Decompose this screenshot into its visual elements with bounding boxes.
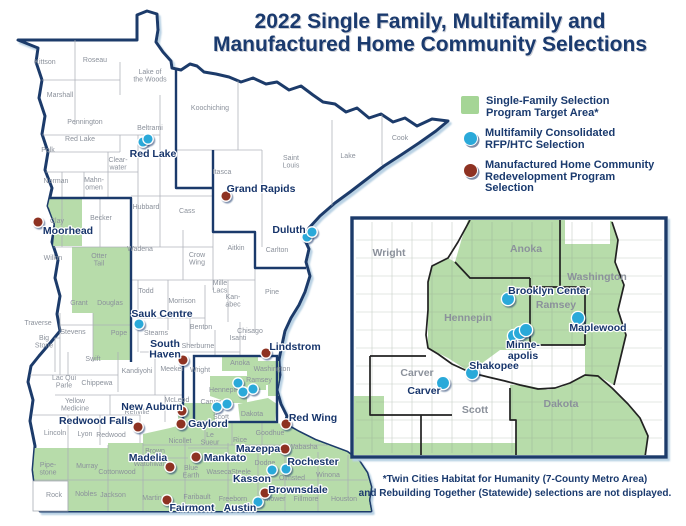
county-label: Becker bbox=[90, 215, 112, 222]
marker-minneapolis-3 bbox=[519, 323, 532, 336]
target-area-swatch-icon bbox=[461, 96, 479, 114]
county-label: Fillmore bbox=[294, 496, 319, 503]
city-label: Lindstrom bbox=[269, 341, 320, 353]
county-label: Pipe-stone bbox=[39, 462, 56, 477]
county-label: Dakota bbox=[241, 411, 263, 418]
county-label: Chippewa bbox=[81, 380, 112, 387]
county-label: Waseca bbox=[206, 469, 231, 476]
county-label: MilleLacs bbox=[213, 280, 228, 295]
city-label: Madelia bbox=[129, 452, 168, 464]
footnote-line1: *Twin Cities Habitat for Humanity (7-Cou… bbox=[352, 473, 678, 487]
county-label: Douglas bbox=[97, 300, 123, 307]
county-label: SaintLouis bbox=[283, 155, 300, 170]
marker-moorhead bbox=[33, 217, 43, 227]
county-label: Chisago bbox=[237, 328, 263, 335]
inset-county-label: Dakota bbox=[543, 398, 578, 410]
city-label: SouthHaven bbox=[149, 338, 181, 361]
county-label: Washington bbox=[254, 366, 291, 373]
county-label: Beltrami bbox=[137, 125, 163, 132]
city-label: Red Wing bbox=[289, 412, 337, 424]
legend-label: Single-Family Selection bbox=[486, 96, 609, 108]
legend-label: RFP/HTC Selection bbox=[485, 140, 615, 152]
county-label: Benton bbox=[190, 324, 212, 331]
marker-mankato bbox=[191, 452, 201, 462]
county-label: Wabasha bbox=[288, 444, 317, 451]
marker-metro-3 bbox=[248, 384, 258, 394]
county-label: Hubbard bbox=[133, 204, 160, 211]
county-label: Red Lake bbox=[65, 136, 95, 143]
marker-duluth-2 bbox=[307, 227, 317, 237]
inset-county-label: Hennepin bbox=[444, 312, 492, 324]
county-label: Aitkin bbox=[227, 245, 244, 252]
legend-label: Program Target Area* bbox=[486, 108, 609, 120]
county-label: Goodhue bbox=[256, 430, 285, 437]
legend-item-manufactured: Manufactured Home Community Redevelopmen… bbox=[455, 160, 683, 195]
legend-label: Manufactured Home Community bbox=[485, 160, 654, 172]
map-canvas: KittsonRoseauLake ofthe WoodsMarshallKoo… bbox=[0, 0, 686, 526]
inset-city-label: Carver bbox=[407, 385, 440, 397]
legend: Single-Family Selection Program Target A… bbox=[455, 96, 683, 204]
county-label: Norman bbox=[44, 178, 69, 185]
county-label: Itasca bbox=[213, 169, 232, 176]
county-label: Martin bbox=[142, 495, 162, 502]
county-label: Stearns bbox=[144, 330, 169, 337]
county-label: Lake bbox=[340, 153, 355, 160]
county-label: Wadena bbox=[127, 246, 153, 253]
county-label: Traverse bbox=[24, 320, 51, 327]
marker-metro-2 bbox=[238, 387, 248, 397]
marker-gaylord bbox=[176, 419, 186, 429]
county-label: Kan-abec bbox=[225, 294, 241, 309]
legend-label: Multifamily Consolidated bbox=[485, 128, 615, 140]
inset-county-label: Ramsey bbox=[536, 299, 576, 311]
county-label: BlueEarth bbox=[183, 465, 200, 480]
map-title-line1: 2022 Single Family, Multifamily and bbox=[178, 10, 682, 33]
county-label: Marshall bbox=[47, 92, 74, 99]
county-label: Winona bbox=[316, 472, 340, 479]
county-label: Clear-water bbox=[108, 157, 128, 172]
county-label: Anoka bbox=[230, 360, 250, 367]
marker-metro-4 bbox=[212, 402, 222, 412]
county-label: Cottonwood bbox=[98, 469, 135, 476]
county-label: Carlton bbox=[266, 247, 289, 254]
county-label: Pope bbox=[111, 330, 127, 337]
county-label: CrowWing bbox=[189, 252, 206, 267]
inset-county-label: Scott bbox=[462, 404, 489, 416]
multifamily-dot-icon bbox=[463, 131, 478, 146]
county-label: Wright bbox=[190, 367, 210, 374]
city-label: New Auburn bbox=[121, 401, 182, 413]
legend-item-target-area: Single-Family Selection Program Target A… bbox=[455, 96, 683, 119]
city-label: Grand Rapids bbox=[227, 183, 296, 195]
inset-county-label: Anoka bbox=[510, 243, 542, 255]
map-title-line2: Manufactured Home Community Selections bbox=[178, 33, 682, 56]
county-label: Grant bbox=[70, 300, 88, 307]
inset-county-label: Carver bbox=[400, 367, 433, 379]
county-label: Meeker bbox=[160, 366, 184, 373]
county-label: Kandiyohi bbox=[122, 368, 153, 375]
county-label: YellowMedicine bbox=[61, 398, 89, 413]
county-label: Stevens bbox=[60, 329, 86, 336]
marker-mazeppa bbox=[280, 444, 290, 454]
county-label: Roseau bbox=[83, 57, 107, 64]
city-label: Redwood Falls bbox=[59, 415, 133, 427]
city-label: Red Lake bbox=[130, 148, 177, 160]
county-label: Kittson bbox=[34, 59, 56, 66]
inset-city-label: Maplewood bbox=[569, 322, 626, 334]
county-label: Polk bbox=[41, 147, 55, 154]
marker-redwood-falls bbox=[133, 422, 143, 432]
marker-sauk-centre bbox=[134, 319, 144, 329]
county-label: Ramsey bbox=[246, 377, 272, 384]
county-label: Todd bbox=[138, 288, 153, 295]
city-label: Brownsdale bbox=[268, 484, 328, 496]
county-label: Pine bbox=[265, 289, 279, 296]
city-label: Duluth bbox=[272, 224, 305, 236]
city-label: Fairmont bbox=[170, 502, 215, 514]
county-label: Nobles bbox=[75, 491, 97, 498]
county-label: Nicollet bbox=[169, 438, 192, 445]
legend-item-multifamily: Multifamily Consolidated RFP/HTC Selecti… bbox=[455, 128, 683, 151]
inset-city-label: Minne-apolis bbox=[506, 339, 540, 362]
manufactured-dot-icon bbox=[463, 163, 478, 178]
county-label: Rock bbox=[46, 492, 62, 499]
inset-city-label: Shakopee bbox=[469, 360, 519, 372]
city-label: Kasson bbox=[233, 473, 271, 485]
county-label: Cook bbox=[392, 135, 409, 142]
county-label: Cass bbox=[179, 208, 195, 215]
map-title: 2022 Single Family, Multifamily and Manu… bbox=[178, 10, 682, 56]
inset-city-label: Brooklyn Center bbox=[508, 285, 590, 297]
legend-label: Selection bbox=[485, 183, 654, 195]
county-label: BigStone bbox=[35, 335, 53, 350]
city-label: Rochester bbox=[287, 456, 338, 468]
marker-metro-5 bbox=[222, 399, 232, 409]
county-label: Pennington bbox=[67, 119, 103, 126]
county-label: Jackson bbox=[100, 492, 126, 499]
county-label: Wilkin bbox=[44, 255, 63, 262]
county-label: Murray bbox=[76, 463, 98, 470]
county-label: Hennepin bbox=[209, 387, 239, 394]
county-label: Mahn-omen bbox=[84, 177, 105, 192]
county-label: Faribault bbox=[183, 494, 210, 501]
county-label: Lyon bbox=[78, 431, 93, 438]
county-label: Morrison bbox=[168, 298, 195, 305]
marker-red-lake-2 bbox=[143, 134, 153, 144]
city-label: Austin bbox=[224, 502, 257, 514]
county-label: Olmsted bbox=[279, 475, 305, 482]
inset-county-label: Wright bbox=[372, 247, 406, 259]
county-label: Clay bbox=[50, 218, 65, 225]
page: KittsonRoseauLake ofthe WoodsMarshallKoo… bbox=[0, 0, 686, 526]
city-label: Gaylord bbox=[188, 418, 228, 430]
county-label: Lincoln bbox=[44, 430, 66, 437]
county-label: Swift bbox=[85, 356, 100, 363]
city-label: Sauk Centre bbox=[131, 308, 192, 320]
city-label: Mazeppa bbox=[236, 443, 281, 455]
county-label: Redwood bbox=[96, 432, 126, 439]
inset-county-label: Washington bbox=[567, 271, 627, 283]
footnote-line2: and Rebuilding Together (Statewide) sele… bbox=[352, 487, 678, 501]
metro-inset-map: WrightAnokaWashingtonHennepinRamseyCarve… bbox=[352, 218, 666, 457]
county-label: Koochiching bbox=[191, 105, 229, 112]
county-label: Isanti bbox=[230, 335, 247, 342]
footnote: *Twin Cities Habitat for Humanity (7-Cou… bbox=[352, 473, 678, 500]
city-label: Moorhead bbox=[43, 225, 93, 237]
county-label: Sherburne bbox=[182, 343, 215, 350]
